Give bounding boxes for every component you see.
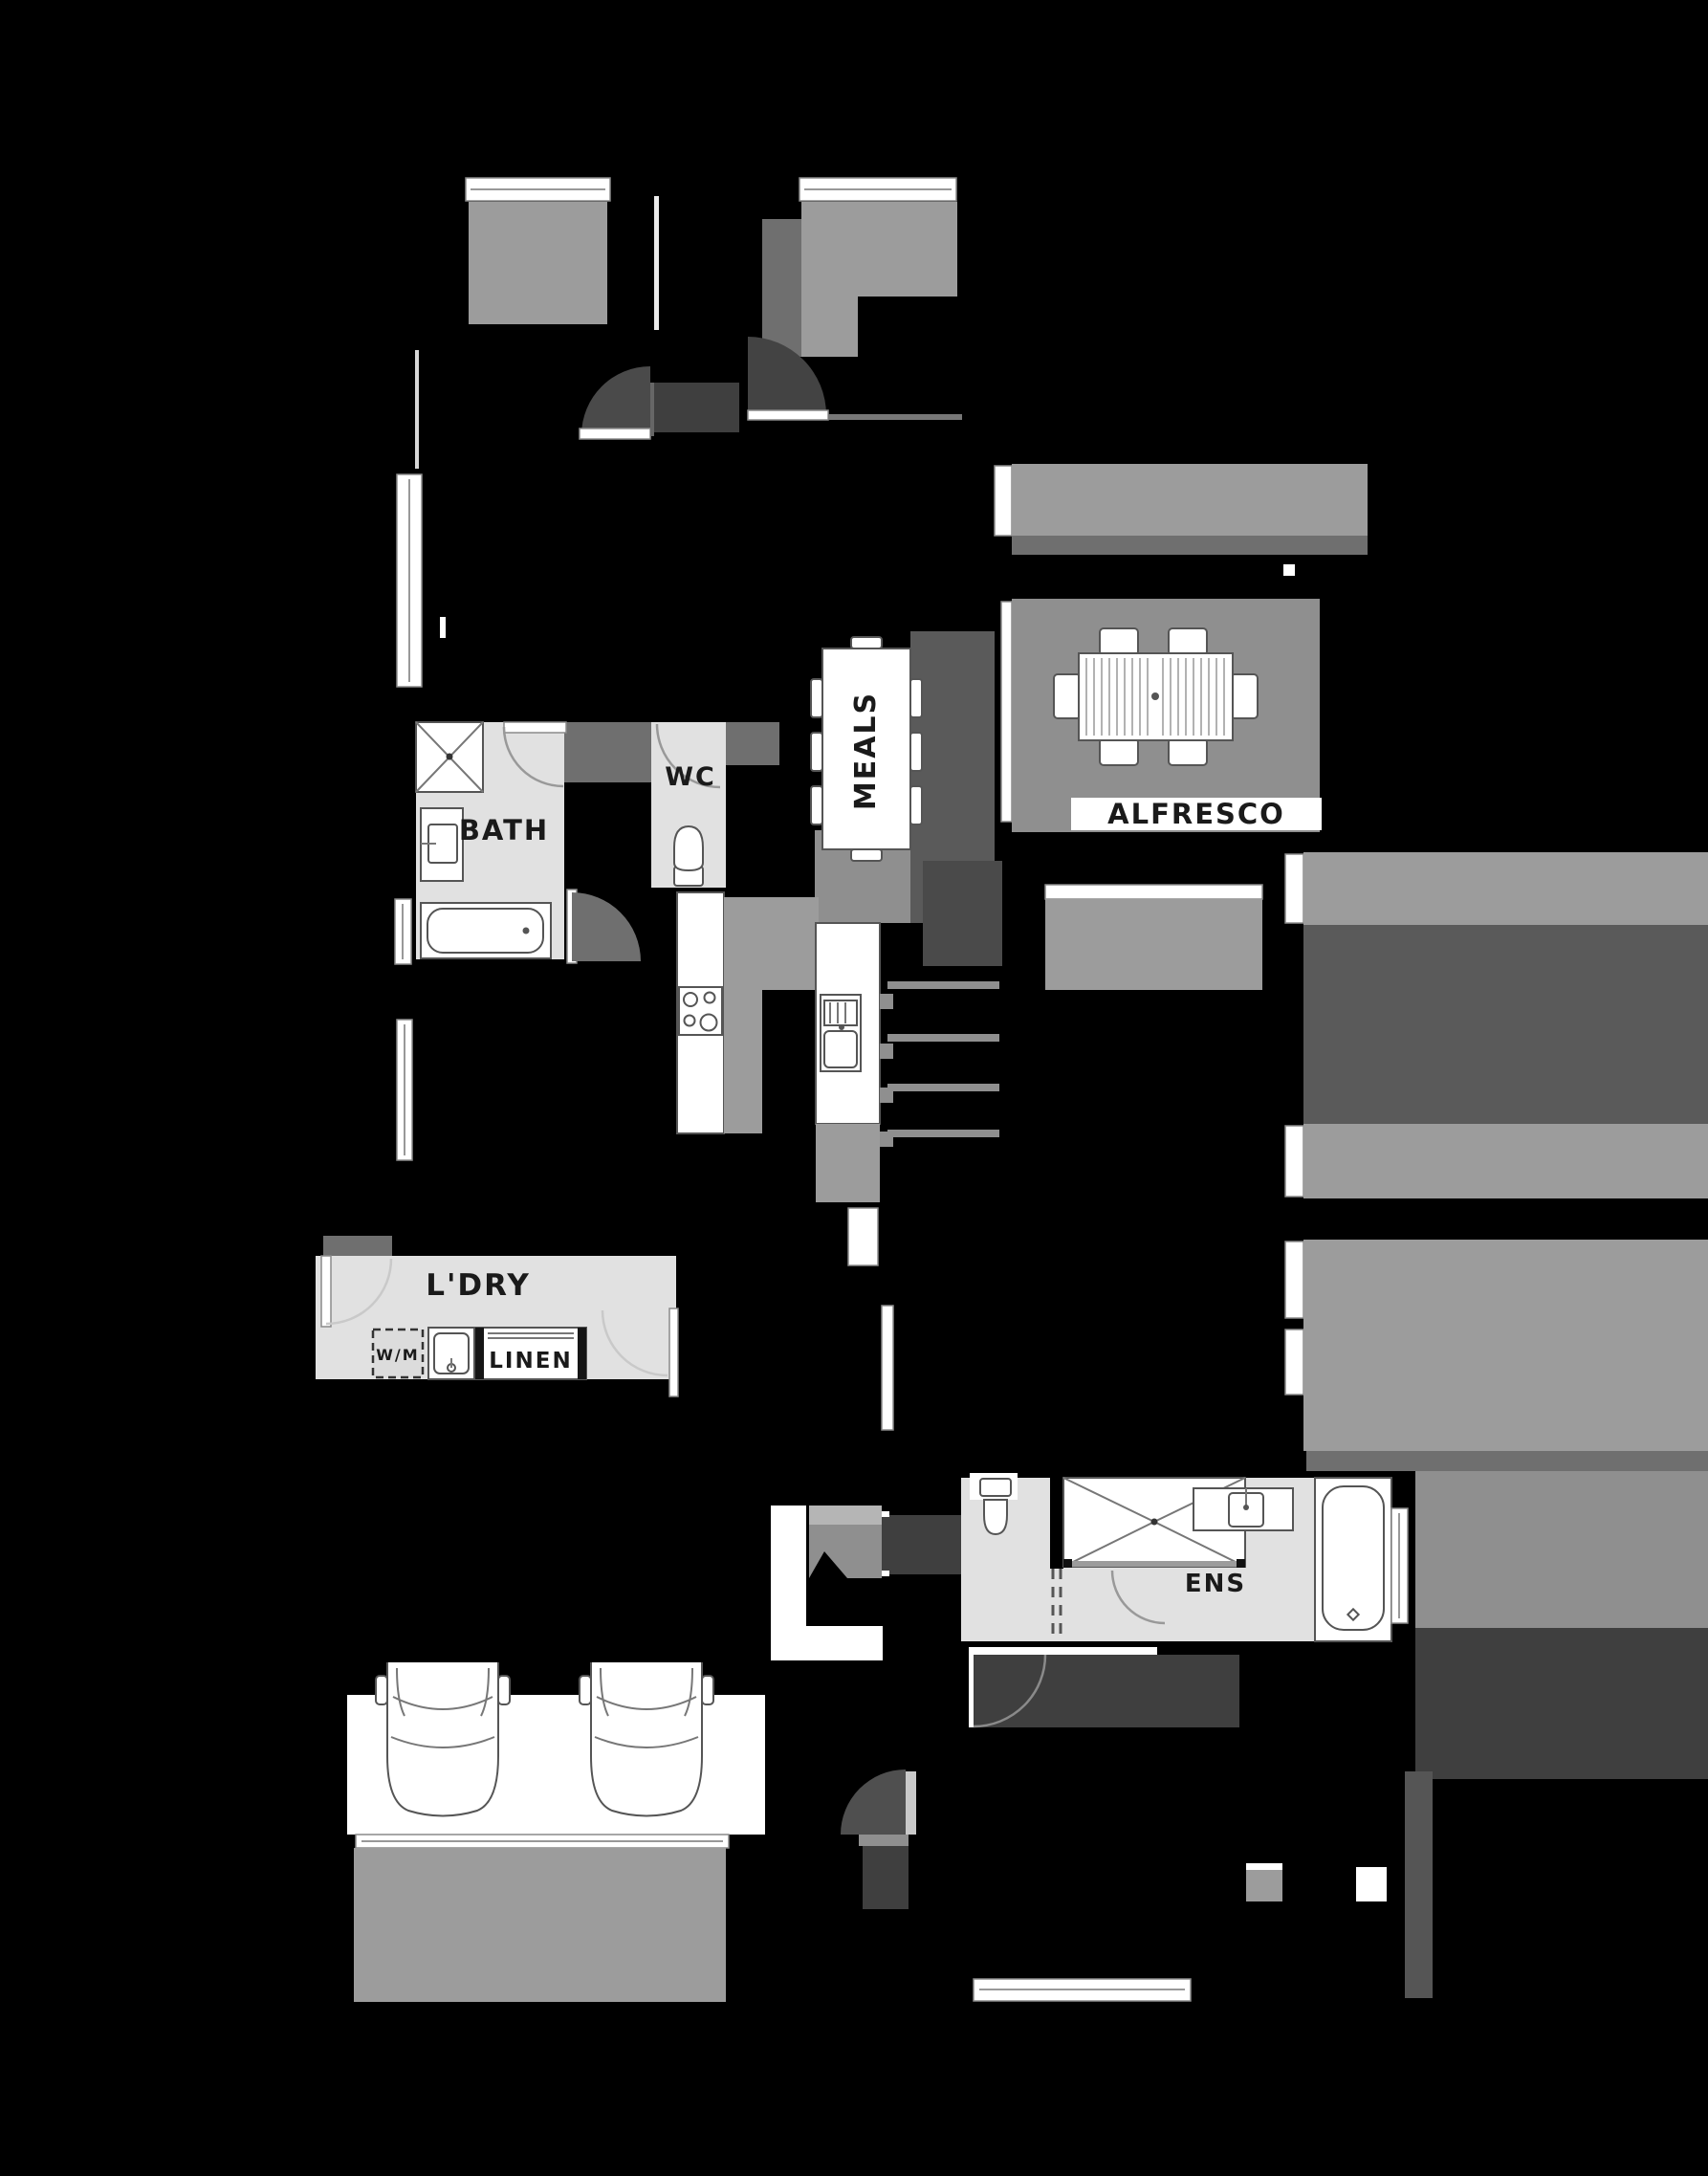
wall-segment [1050,1471,1063,1569]
vanity-sink-icon [421,808,463,881]
window-icon [466,178,610,201]
wardrobe [801,202,957,297]
wall-tick [882,1511,889,1517]
garage [347,1662,765,2002]
hall-shadow [654,383,739,432]
room-label: BATH [459,814,549,846]
floor-band [1303,1124,1708,1198]
window-jamb [1285,854,1303,923]
floor-band-edge [1012,536,1368,555]
porch-pier [1356,1867,1387,1901]
island-base [816,1124,880,1202]
washing-machine-icon: W/M [373,1330,423,1377]
dryer-box [323,1236,392,1256]
linen-cupboard: LINEN [475,1328,586,1379]
cabinet-base [806,1626,883,1660]
room-label: ALFRESCO [1107,798,1285,830]
hall-shadow [564,722,651,782]
kitchen-bench [724,897,819,990]
driveway [354,1848,726,2002]
bathtub-icon [421,903,551,958]
floor-plan-page: MEALS [0,0,1708,2176]
window-jamb [995,466,1012,536]
floor-band-dark [1415,1628,1708,1779]
wall-tick [882,1571,889,1576]
room-label: ENS [1185,1570,1246,1598]
toilet-icon [980,1479,1011,1534]
room-label: L'DRY [426,1268,531,1303]
wall-shadow [1405,1771,1433,1998]
floor-band-edge [1306,1451,1708,1471]
pantry-shadow [923,861,1002,966]
cabinet-panel [771,1506,806,1660]
window-icon [395,899,411,964]
stool-tab [880,1044,893,1059]
porch-pier [1246,1863,1282,1901]
room-wc: WC [651,722,726,888]
car-icon [580,1662,713,1816]
floor-band [1303,852,1708,925]
car-icon [376,1662,510,1816]
hall-shadow [726,722,779,765]
cabinet-shelf [809,1506,882,1525]
window-jamb [1285,1242,1303,1318]
window-icon [799,178,956,201]
floor-band [1012,464,1368,536]
room-label: MEALS [849,692,883,810]
window-icon [1391,1508,1408,1623]
pier-marker [1283,564,1295,576]
room-laundry: L'DRY W/M LINEN [316,1236,678,1396]
garage-door [356,1835,729,1848]
toilet-icon [674,826,703,886]
vanity-sink-icon [1193,1488,1293,1530]
kitchen-bench [724,990,762,1133]
wall-line [654,196,659,330]
threshold-line [828,414,962,420]
outdoor-bench [1045,885,1262,990]
floor-plan: MEALS [0,0,1708,2176]
wall-line [415,350,419,469]
floor-band [1303,1240,1708,1451]
room-label: WC [665,762,716,792]
bathtub-icon [1315,1478,1391,1641]
window-icon [974,1979,1191,2001]
window-jamb [1285,1330,1303,1395]
floor-band [1415,1471,1708,1628]
wall-jamb [848,1208,878,1265]
kitchen-island [816,923,880,1124]
kitchen-counter [677,892,724,1133]
wall-tick [440,617,446,638]
stacker-door-jamb [1001,602,1012,822]
stool-tab [880,994,893,1009]
wardrobe [801,297,858,357]
wardrobe [469,202,607,324]
hall-shadow [762,219,801,357]
shower-icon [416,722,483,792]
bedroom-entry-shadow [969,1647,1239,1727]
laundry-tub-icon [428,1328,474,1379]
svg-text:LINEN: LINEN [489,1349,572,1374]
window-icon [397,1020,412,1160]
window-icon [397,474,422,687]
window-jamb [1285,1126,1303,1197]
hall-shadow [882,1515,971,1574]
svg-text:W/M: W/M [376,1346,419,1364]
floor-band-dark [1303,925,1708,1124]
wall-jamb [882,1306,893,1430]
